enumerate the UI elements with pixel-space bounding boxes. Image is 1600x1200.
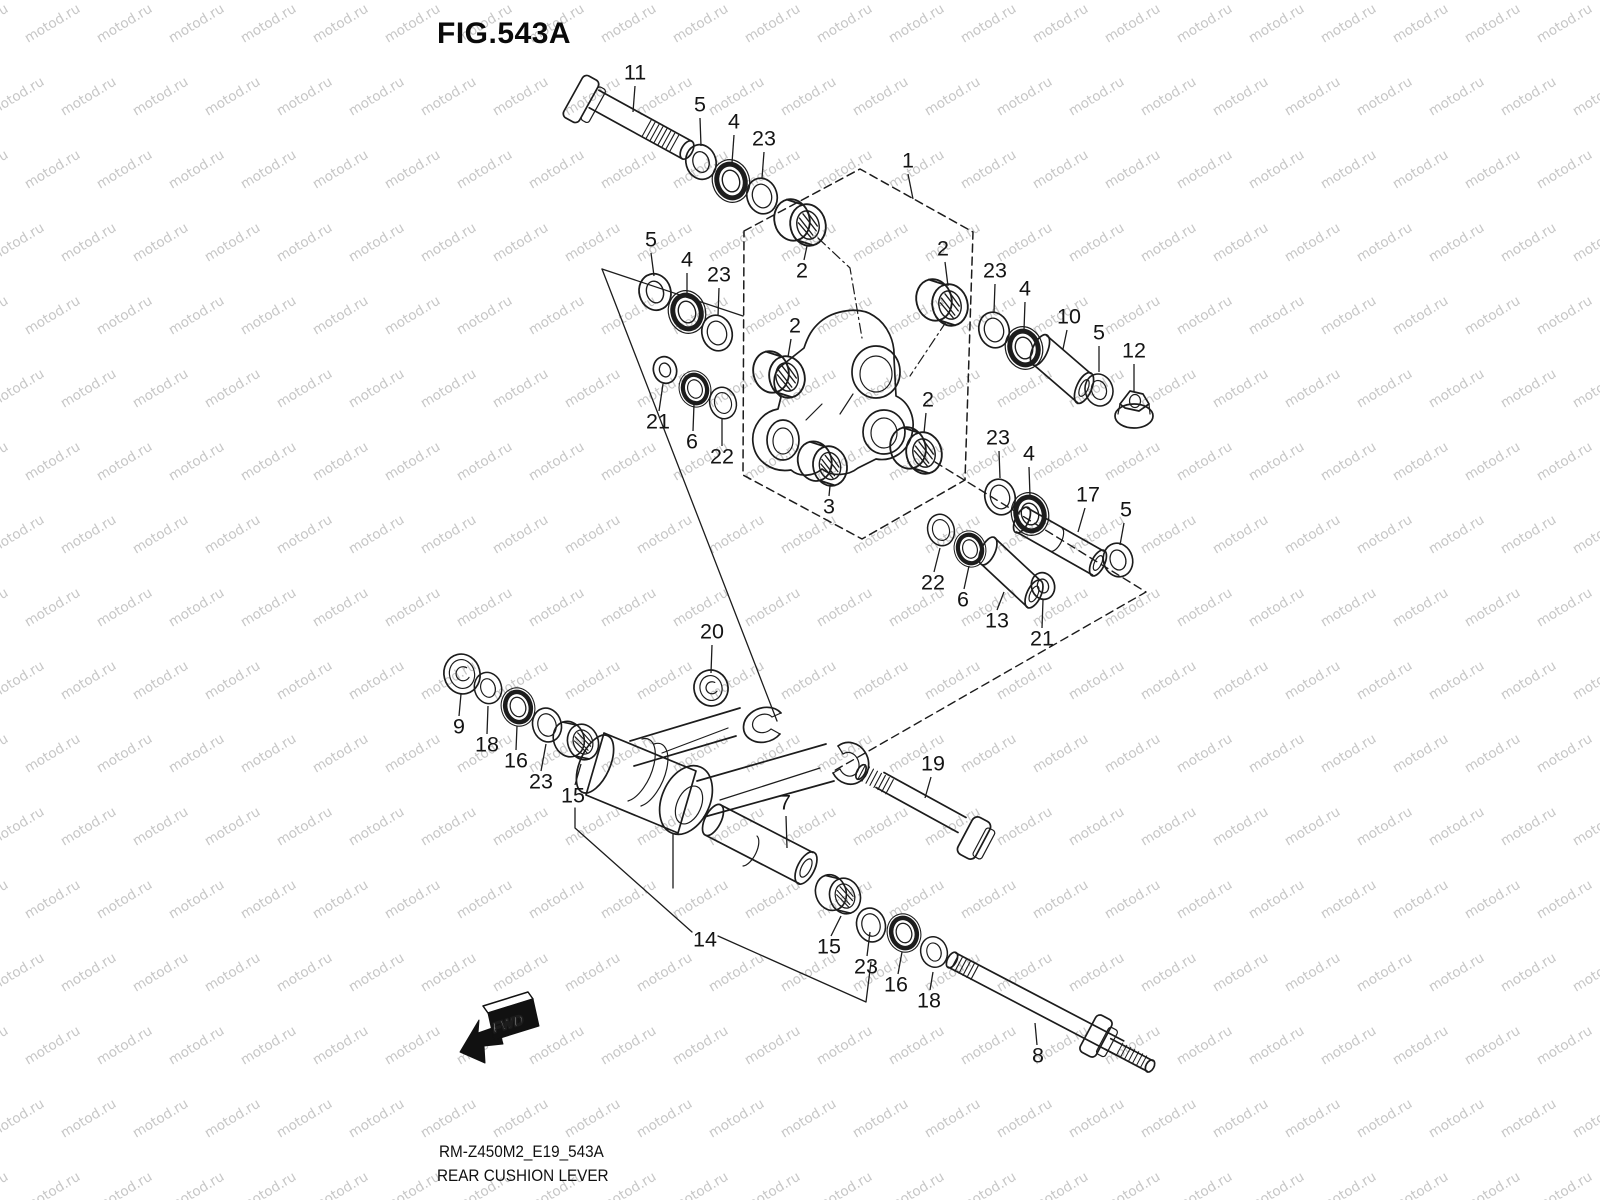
callout-leader-line (1063, 330, 1067, 349)
needle-bearing-15 (811, 867, 865, 922)
part-callout-4: 4 (1023, 442, 1035, 466)
callout-leader-line (786, 816, 787, 848)
spacer-13 (975, 534, 1046, 610)
cushion-lever-rocker (753, 310, 913, 475)
callout-leader-line (541, 744, 546, 771)
callout-leader-line (700, 118, 701, 146)
figure-title: FIG.543A (437, 17, 571, 50)
part-callout-12: 12 (1122, 339, 1146, 363)
part-callout-14: 14 (693, 928, 717, 952)
callout-leader-line (964, 566, 969, 589)
needle-bearing-2 (912, 272, 972, 333)
part-callout-4: 4 (681, 248, 693, 272)
callout-leader-line (908, 174, 913, 199)
callout-leader-line (925, 777, 931, 798)
part-callout-8: 8 (1032, 1044, 1044, 1068)
callout-leader-line (651, 253, 654, 276)
callout-leader-line (788, 339, 791, 357)
callout-leader-line (459, 694, 461, 716)
callout-leader-line (1035, 1023, 1037, 1045)
pivot-bolt-11 (561, 74, 696, 162)
callout-leader-line (711, 645, 712, 673)
part-callout-10: 10 (1057, 305, 1081, 329)
flange-bolt-9 (440, 650, 485, 698)
callout-leader-line (898, 952, 902, 974)
part-callout-6: 6 (686, 430, 698, 454)
part-callout-2: 2 (937, 237, 949, 261)
exploded-parts-diagram: FWD 115423122223234105125423216222341752… (0, 0, 1600, 1200)
washer-23 (853, 905, 890, 946)
part-callout-21: 21 (646, 410, 670, 434)
part-callout-13: 13 (985, 609, 1009, 633)
part-callout-22: 22 (921, 571, 945, 595)
part-callout-16: 16 (504, 749, 528, 773)
parts-diagram-page: motod.rumotod.rumotod.rumotod.rumotod.ru… (0, 0, 1600, 1200)
part-callout-16: 16 (884, 973, 908, 997)
callout-leader-line (1029, 467, 1030, 496)
part-callout-21: 21 (1030, 627, 1054, 651)
part-callout-4: 4 (1019, 277, 1031, 301)
part-callout-23: 23 (752, 127, 776, 151)
part-callout-5: 5 (1120, 498, 1132, 522)
callout-leader-line (718, 288, 719, 316)
part-callout-1: 1 (902, 149, 914, 173)
callout-leader-line (693, 404, 694, 431)
part-callout-23: 23 (529, 770, 553, 794)
part-callout-20: 20 (700, 620, 724, 644)
figure-name: REAR CUSHION LEVER (437, 1166, 609, 1185)
callout-leader-line (762, 152, 764, 178)
washer-23 (529, 705, 566, 746)
centerline-bearing-top (818, 238, 862, 338)
callout-layer: 1154231222232341051254232162223417522613… (453, 61, 1146, 1068)
wedge-pointer-lines (602, 269, 777, 721)
flange-nut-12 (1115, 391, 1153, 428)
centerline-bearing-right (910, 322, 946, 376)
part-callout-23: 23 (983, 259, 1007, 283)
part-callout-15: 15 (561, 784, 585, 808)
part-callout-4: 4 (728, 110, 740, 134)
callout-leader-line (945, 262, 948, 286)
callout-leader-line (732, 135, 734, 163)
footer: RM-Z450M2_E19_543A REAR CUSHION LEVER (437, 1142, 609, 1185)
part-callout-15: 15 (817, 935, 841, 959)
callout-leader-line (487, 706, 488, 734)
part-callout-3: 3 (823, 495, 835, 519)
part-callout-23: 23 (986, 426, 1010, 450)
needle-bearing-15 (548, 713, 603, 769)
callout-leader-line (994, 284, 995, 312)
part-callout-23: 23 (854, 955, 878, 979)
part-callout-5: 5 (694, 93, 706, 117)
part-callout-5: 5 (1093, 321, 1105, 345)
callout-leader-line (930, 972, 933, 990)
cushion-lever-14 (569, 707, 869, 842)
needle-bearing-2 (770, 192, 830, 253)
part-callout-17: 17 (1076, 483, 1100, 507)
callout-leader-line (516, 726, 517, 750)
washer-23 (698, 312, 737, 355)
fwd-direction-icon: FWD (460, 992, 539, 1063)
part-callout-2: 2 (796, 259, 808, 283)
part-callout-2: 2 (922, 388, 934, 412)
part-callout-18: 18 (917, 989, 941, 1013)
collar-5 (1081, 371, 1116, 410)
washer-21 (650, 354, 680, 386)
part-callout-9: 9 (453, 715, 465, 739)
part-callout-11: 11 (624, 61, 646, 85)
callout-leader-line (1120, 523, 1124, 545)
callout-leader-line (831, 916, 841, 936)
part-callout-18: 18 (475, 733, 499, 757)
callout-leader-line (1024, 302, 1025, 330)
part-callout-2: 2 (789, 314, 801, 338)
figure-code: RM-Z450M2_E19_543A (439, 1142, 604, 1161)
washer-22 (924, 511, 958, 549)
part-callout-23: 23 (707, 263, 731, 287)
callout-leader-line (924, 413, 926, 433)
lever-axle-8 (944, 950, 1157, 1073)
callout-leader-line (1042, 600, 1043, 628)
part-callout-7: 7 (779, 791, 791, 815)
callout-leader-line (659, 384, 663, 411)
callout-leader-line (999, 451, 1000, 478)
lever-bolt-19 (854, 763, 996, 861)
callout-leader-line (1078, 508, 1085, 532)
part-callout-22: 22 (710, 445, 734, 469)
part-callout-5: 5 (645, 228, 657, 252)
needle-bearing-3 (794, 434, 852, 492)
callout-leader-line (633, 86, 635, 112)
part-callout-6: 6 (957, 588, 969, 612)
callout-leader-line (934, 548, 940, 572)
oil-seal-16 (883, 910, 926, 956)
bracket-lever-14 (575, 808, 871, 1002)
callout-leader-line (997, 592, 1004, 610)
part-callout-19: 19 (921, 752, 945, 776)
